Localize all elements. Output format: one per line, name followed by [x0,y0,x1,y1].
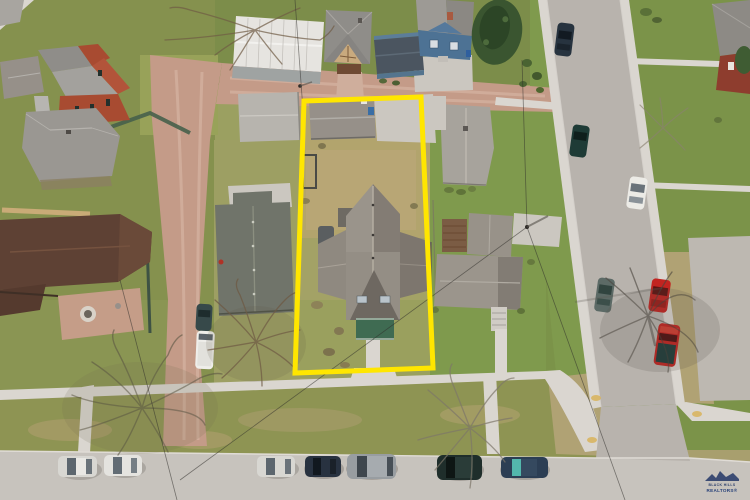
subject-garage [309,98,376,140]
parked-car [304,456,344,479]
trash-bin [368,107,374,115]
blue-shed [374,32,424,79]
trash-bin [466,50,471,57]
logo-brand-text: BLACK HILLS [708,483,735,487]
curb-ramp-pad [692,411,702,417]
parked-suv [346,454,398,480]
garage-door [337,64,361,74]
grill [219,260,224,265]
parked-car [195,304,212,332]
aerial-photo: BLACK HILLS REALTORS® [0,0,750,500]
curb-ramp-pad [591,395,601,401]
subject-parking-pad [374,94,436,143]
west-garage [238,92,300,142]
parked-car [257,456,299,479]
front-walkway [366,340,380,372]
west-neighbor-house [215,191,294,316]
porch-roof [356,318,394,340]
chimney [447,12,453,20]
logo-realtors-text: REALTORS® [707,487,738,493]
blue-house [416,0,474,62]
parked-car [58,456,102,480]
parked-suv [436,455,484,481]
aerial-neighborhood-scene: BLACK HILLS REALTORS® [0,0,750,500]
parked-car [104,455,146,478]
parked-car [500,457,550,480]
curb-ramp-pad [587,437,597,443]
